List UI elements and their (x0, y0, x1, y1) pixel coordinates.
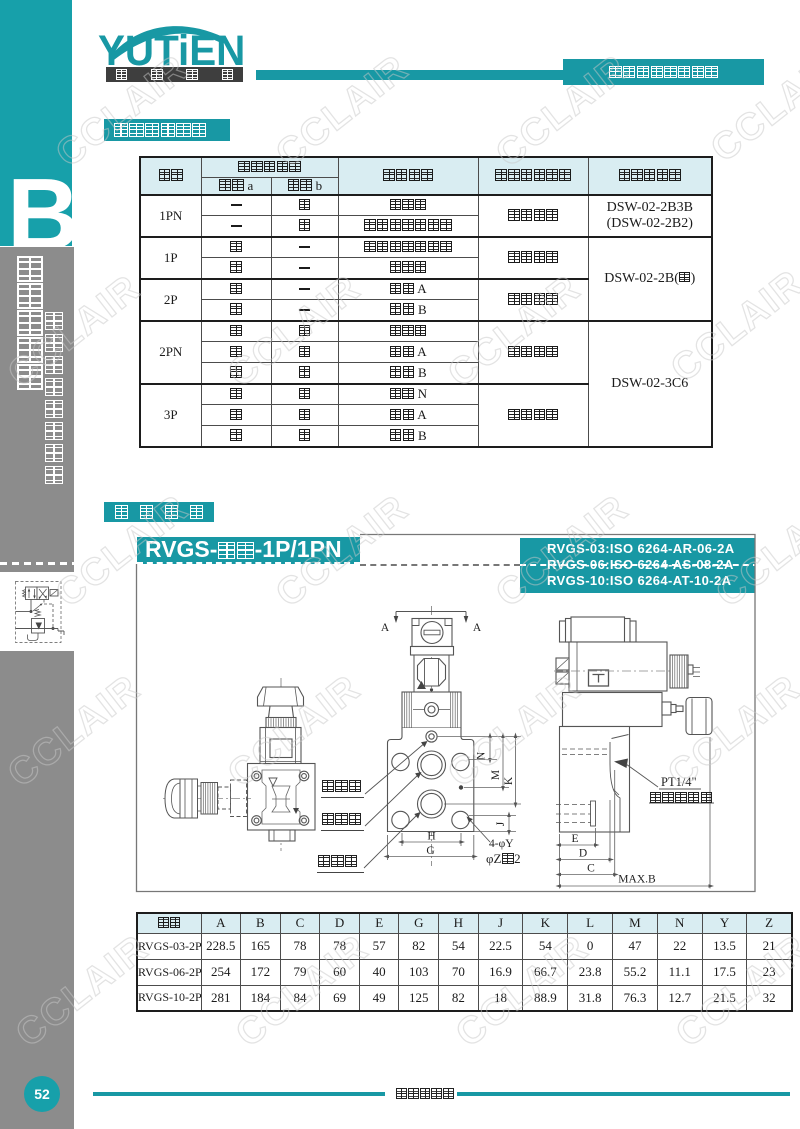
svg-text:N: N (476, 751, 488, 760)
svg-text:E: E (571, 833, 578, 845)
svg-text:4-φY: 4-φY (489, 838, 514, 850)
svg-text:G: G (426, 845, 434, 857)
svg-text:PT1/4": PT1/4" (661, 775, 697, 789)
svg-text:MAX.B: MAX.B (618, 874, 656, 886)
svg-text:J: J (495, 821, 507, 826)
svg-text:A: A (473, 622, 482, 634)
svg-text:D: D (579, 848, 587, 860)
svg-text:C: C (587, 863, 595, 875)
svg-text:K: K (503, 776, 515, 785)
svg-text:A: A (381, 622, 390, 634)
svg-text:H: H (427, 831, 435, 843)
svg-text:M: M (490, 770, 502, 780)
